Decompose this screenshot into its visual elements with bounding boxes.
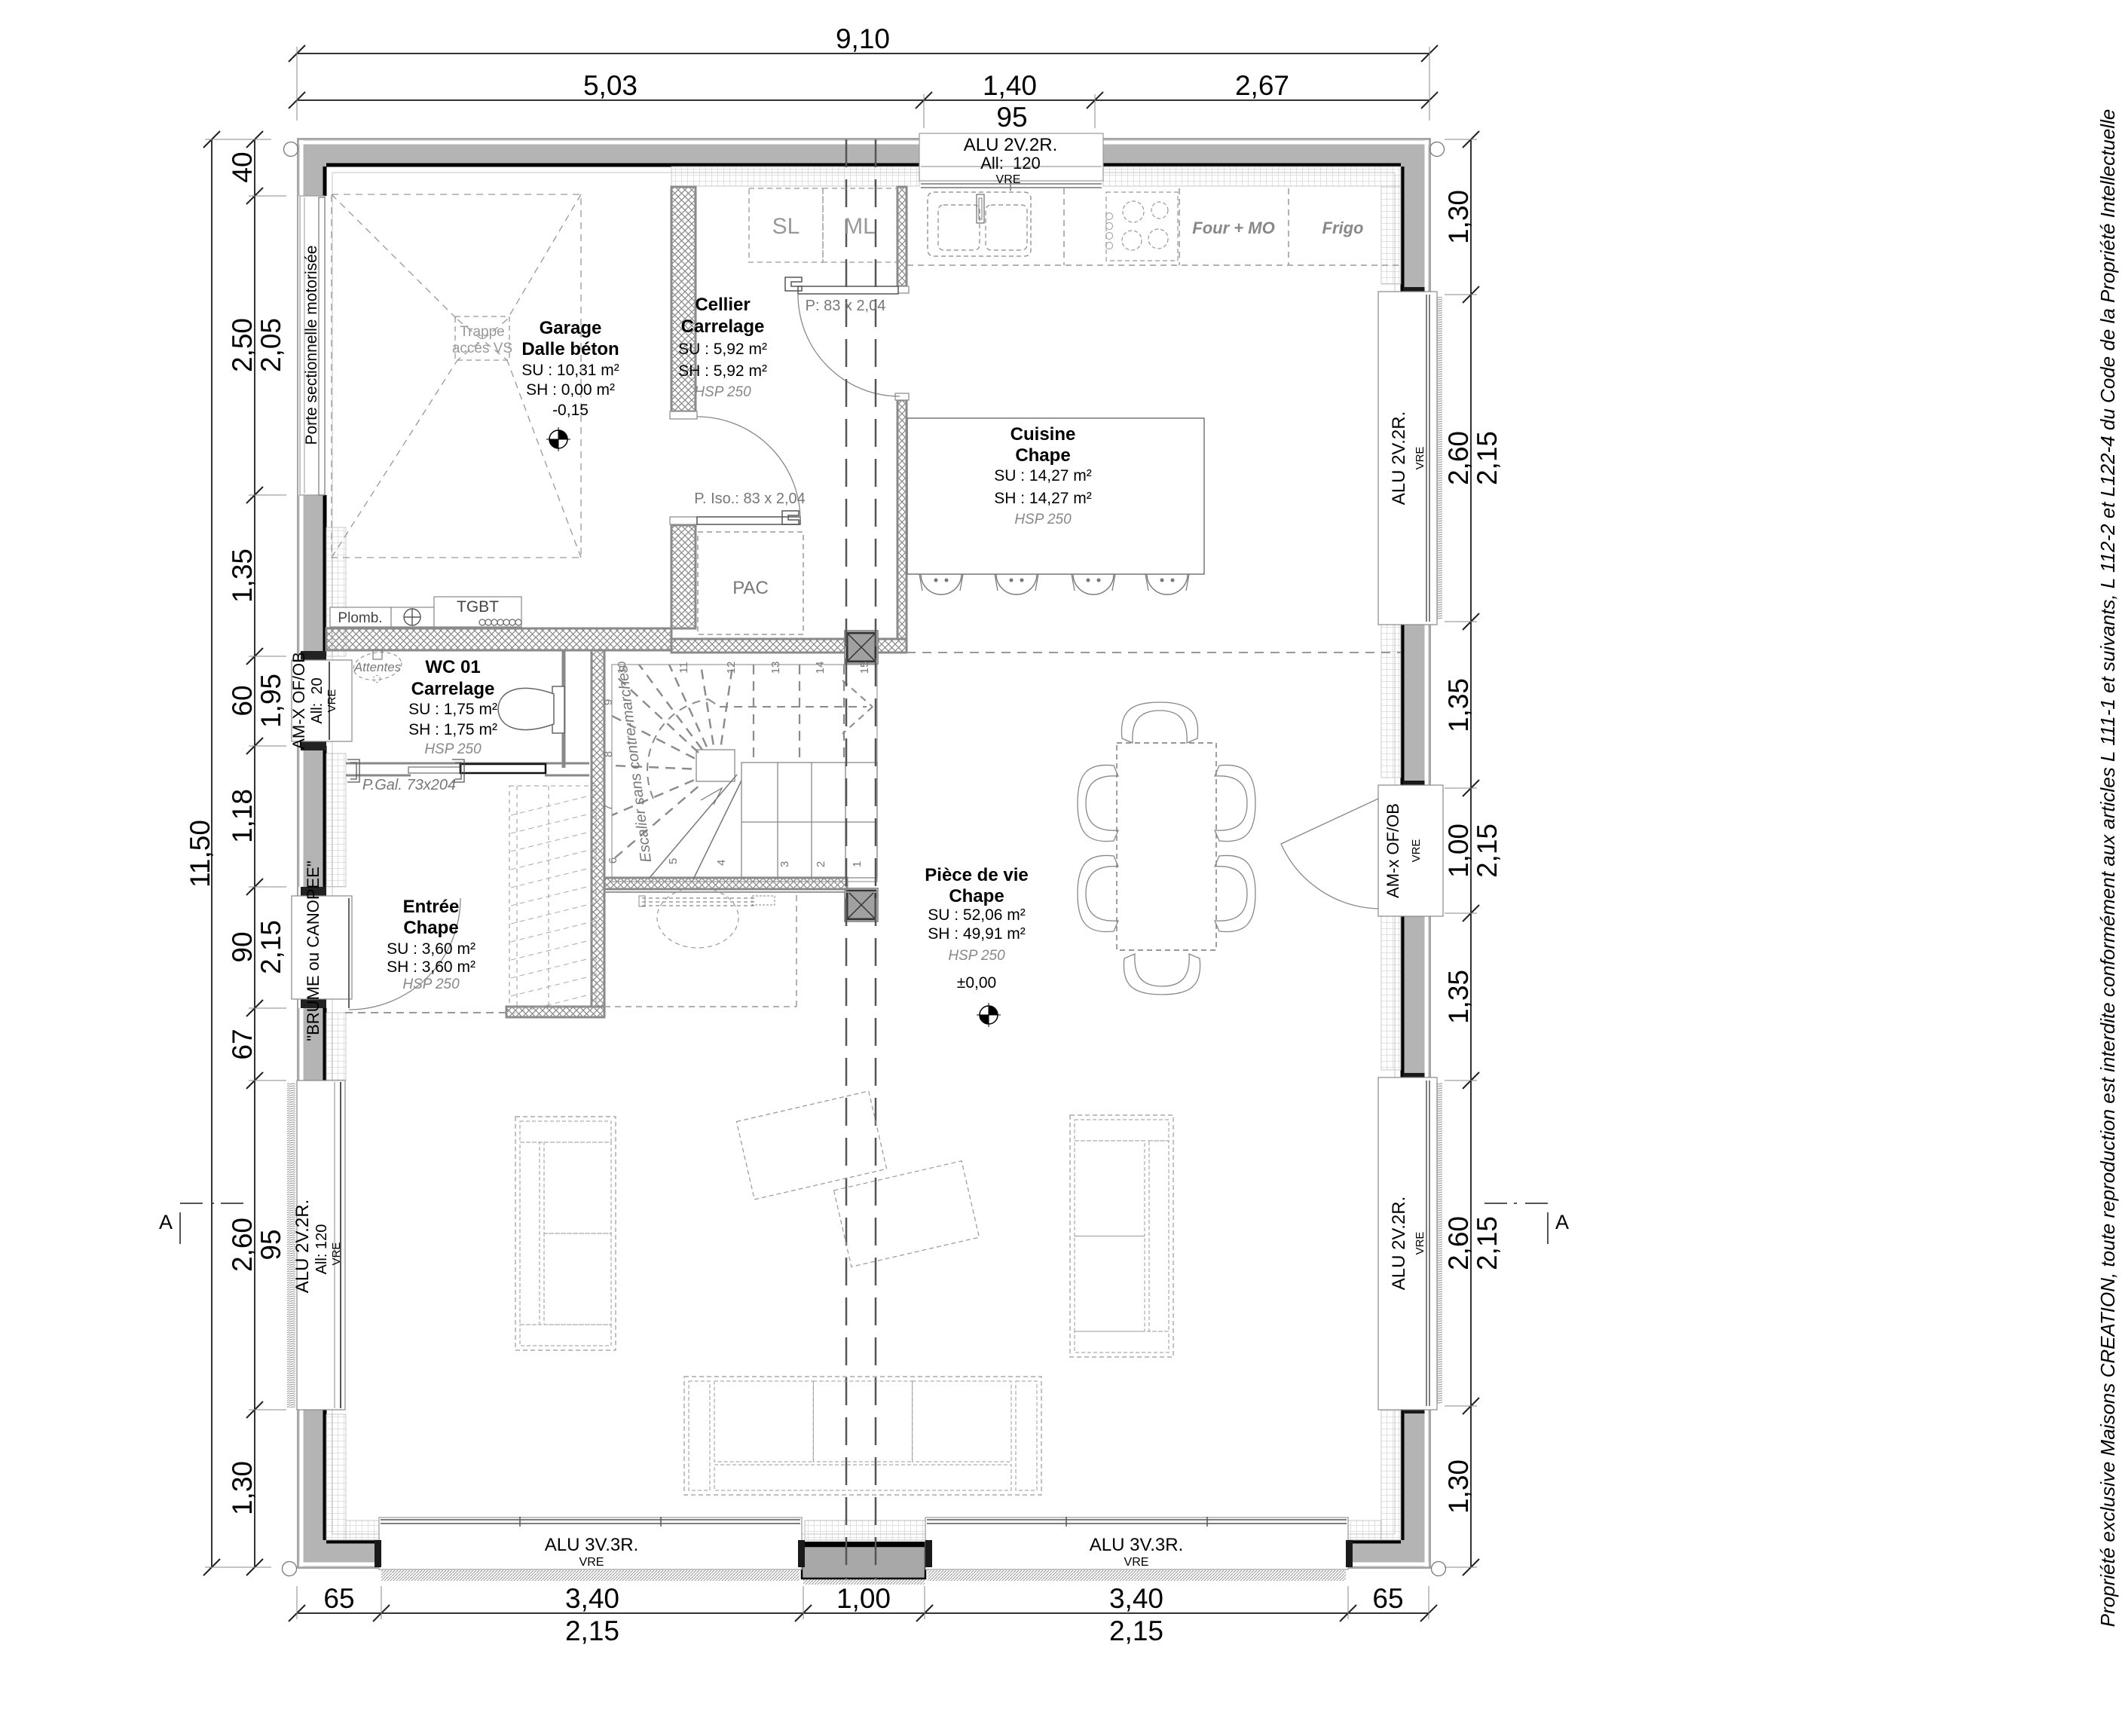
svg-text:Pièce de vie: Pièce de vie — [925, 865, 1028, 885]
svg-text:ALU 2V.2R.: ALU 2V.2R. — [292, 1200, 313, 1294]
svg-text:SH : 5,92 m²: SH : 5,92 m² — [678, 362, 767, 380]
svg-text:ALU 2V.2R.: ALU 2V.2R. — [1389, 411, 1409, 506]
svg-text:1,30: 1,30 — [1443, 1459, 1474, 1514]
svg-text:13: 13 — [769, 662, 782, 674]
svg-text:2,60: 2,60 — [1443, 1216, 1474, 1270]
svg-text:ALU 2V.2R.: ALU 2V.2R. — [964, 135, 1058, 155]
svg-text:Porte sectionnelle motorisée: Porte sectionnelle motorisée — [303, 246, 320, 445]
svg-text:VRE: VRE — [579, 1556, 604, 1569]
svg-text:All: 120: All: 120 — [313, 1224, 330, 1275]
svg-text:90: 90 — [227, 931, 258, 962]
svg-text:1,30: 1,30 — [1443, 190, 1474, 244]
svg-text:1,18: 1,18 — [227, 789, 258, 843]
svg-text:VRE: VRE — [1124, 1556, 1149, 1569]
svg-text:1,95: 1,95 — [255, 674, 286, 728]
svg-text:±0,00: ±0,00 — [957, 974, 996, 992]
svg-text:Chape: Chape — [403, 918, 458, 938]
svg-text:VRE: VRE — [1414, 1232, 1426, 1255]
svg-text:HSP 250: HSP 250 — [424, 741, 482, 757]
svg-text:11: 11 — [677, 662, 690, 674]
svg-text:6: 6 — [607, 857, 619, 863]
svg-text:Attentes: Attentes — [353, 660, 402, 674]
svg-text:PAC: PAC — [732, 578, 769, 598]
svg-text:P: 83 x 2,04: P: 83 x 2,04 — [806, 298, 886, 314]
svg-text:AM-x OF/OB: AM-x OF/OB — [1384, 803, 1402, 898]
svg-text:VRE: VRE — [1414, 447, 1426, 470]
svg-text:Carrelage: Carrelage — [681, 316, 765, 337]
svg-text:Entrée: Entrée — [403, 897, 460, 917]
svg-text:SU : 52,06 m²: SU : 52,06 m² — [928, 906, 1026, 924]
svg-text:3: 3 — [778, 861, 791, 867]
svg-text:A: A — [159, 1211, 173, 1233]
svg-text:5,03: 5,03 — [583, 70, 637, 101]
svg-text:SU : 10,31 m²: SU : 10,31 m² — [521, 362, 619, 379]
svg-text:1,00: 1,00 — [1443, 824, 1474, 878]
svg-text:HSP 250: HSP 250 — [402, 976, 460, 992]
svg-text:SU : 14,27 m²: SU : 14,27 m² — [994, 467, 1092, 484]
svg-text:A: A — [1555, 1211, 1569, 1233]
svg-text:VRE: VRE — [996, 173, 1021, 186]
svg-text:Plomb.: Plomb. — [338, 610, 382, 626]
svg-text:95: 95 — [996, 102, 1027, 133]
svg-text:65: 65 — [323, 1583, 354, 1614]
svg-text:2: 2 — [815, 861, 827, 867]
svg-text:Chape: Chape — [1015, 445, 1070, 466]
svg-text:11,50: 11,50 — [185, 820, 216, 888]
svg-text:2,15: 2,15 — [1472, 431, 1503, 485]
svg-text:9,10: 9,10 — [836, 23, 890, 54]
svg-text:65: 65 — [1372, 1583, 1403, 1614]
svg-text:8: 8 — [602, 751, 615, 757]
svg-text:SU : 3,60 m²: SU : 3,60 m² — [387, 940, 475, 958]
svg-text:1,40: 1,40 — [983, 70, 1037, 101]
svg-text:SL: SL — [772, 214, 800, 239]
svg-text:HSP 250: HSP 250 — [694, 384, 751, 400]
svg-text:ML: ML — [844, 214, 876, 239]
svg-text:2,15: 2,15 — [255, 920, 286, 974]
svg-text:2,15: 2,15 — [1109, 1615, 1163, 1646]
svg-text:2,67: 2,67 — [1235, 70, 1289, 101]
svg-text:ALU 3V.3R.: ALU 3V.3R. — [1090, 1535, 1184, 1555]
svg-text:Dalle béton: Dalle béton — [521, 339, 619, 359]
svg-text:2,50: 2,50 — [227, 318, 258, 372]
svg-text:SH : 3,60 m²: SH : 3,60 m² — [387, 958, 475, 976]
svg-text:Chape: Chape — [949, 886, 1004, 906]
svg-text:All: 20: All: 20 — [309, 677, 326, 723]
svg-text:SU : 1,75 m²: SU : 1,75 m² — [408, 701, 497, 718]
svg-text:AM-X OF/OB: AM-X OF/OB — [289, 652, 308, 750]
svg-text:2,05: 2,05 — [255, 318, 286, 372]
svg-text:15: 15 — [858, 662, 871, 674]
svg-text:3,40: 3,40 — [565, 1583, 619, 1614]
svg-text:All: 120: All: 120 — [980, 154, 1041, 173]
svg-text:1,35: 1,35 — [1443, 678, 1474, 732]
svg-text:Propriété exclusive Maisons CR: Propriété exclusive Maisons CREATION, to… — [2096, 109, 2119, 1627]
svg-text:1,35: 1,35 — [1443, 970, 1474, 1024]
svg-text:VRE: VRE — [330, 1242, 343, 1266]
svg-text:HSP 250: HSP 250 — [948, 948, 1005, 964]
svg-text:2,15: 2,15 — [1472, 824, 1503, 878]
svg-text:14: 14 — [814, 662, 827, 674]
svg-text:60: 60 — [227, 685, 258, 716]
svg-text:Cuisine: Cuisine — [1011, 424, 1076, 445]
svg-text:WC 01: WC 01 — [425, 657, 480, 677]
svg-text:3,40: 3,40 — [1109, 1583, 1163, 1614]
svg-text:"BRUME ou CANOPEE": "BRUME ou CANOPEE" — [304, 860, 323, 1041]
svg-text:Cellier: Cellier — [695, 295, 750, 315]
svg-text:SH : 49,91 m²: SH : 49,91 m² — [928, 925, 1026, 943]
svg-text:HSP 250: HSP 250 — [1014, 512, 1072, 527]
svg-text:1,35: 1,35 — [227, 549, 258, 603]
svg-text:P. Iso.: 83 x 2,04: P. Iso.: 83 x 2,04 — [694, 491, 806, 507]
svg-text:95: 95 — [255, 1229, 286, 1260]
svg-text:SU : 5,92 m²: SU : 5,92 m² — [678, 341, 767, 358]
svg-text:Trappe: Trappe — [460, 324, 505, 340]
svg-text:-0,15: -0,15 — [552, 402, 589, 419]
svg-text:ALU 2V.2R.: ALU 2V.2R. — [1389, 1197, 1409, 1291]
svg-text:Garage: Garage — [540, 318, 602, 338]
svg-text:7: 7 — [602, 805, 615, 811]
svg-text:67: 67 — [227, 1028, 258, 1059]
svg-text:1,00: 1,00 — [836, 1583, 891, 1614]
svg-text:SH : 14,27 m²: SH : 14,27 m² — [994, 490, 1092, 507]
svg-text:9: 9 — [602, 699, 615, 705]
svg-text:5: 5 — [667, 858, 680, 864]
svg-text:VRE: VRE — [1410, 839, 1423, 863]
svg-text:40: 40 — [227, 151, 258, 182]
svg-text:2,15: 2,15 — [1472, 1216, 1503, 1270]
svg-text:SH : 0,00 m²: SH : 0,00 m² — [526, 381, 615, 399]
svg-text:2,60: 2,60 — [1443, 431, 1474, 485]
svg-text:SH : 1,75 m²: SH : 1,75 m² — [408, 721, 497, 738]
svg-text:VRE: VRE — [326, 689, 338, 713]
svg-text:Four + MO: Four + MO — [1192, 219, 1274, 237]
svg-text:accès VS: accès VS — [452, 341, 512, 356]
svg-text:2,15: 2,15 — [565, 1615, 619, 1646]
svg-text:1: 1 — [851, 861, 864, 867]
svg-text:P.Gal. 73x204: P.Gal. 73x204 — [362, 777, 456, 793]
svg-text:ALU 3V.3R.: ALU 3V.3R. — [545, 1535, 639, 1555]
svg-text:1,30: 1,30 — [227, 1461, 258, 1515]
svg-text:2,60: 2,60 — [227, 1218, 258, 1272]
svg-text:TGBT: TGBT — [457, 598, 499, 616]
svg-text:4: 4 — [715, 860, 728, 866]
svg-text:Frigo: Frigo — [1322, 219, 1364, 237]
svg-text:Carrelage: Carrelage — [411, 679, 495, 699]
svg-text:12: 12 — [725, 662, 738, 674]
